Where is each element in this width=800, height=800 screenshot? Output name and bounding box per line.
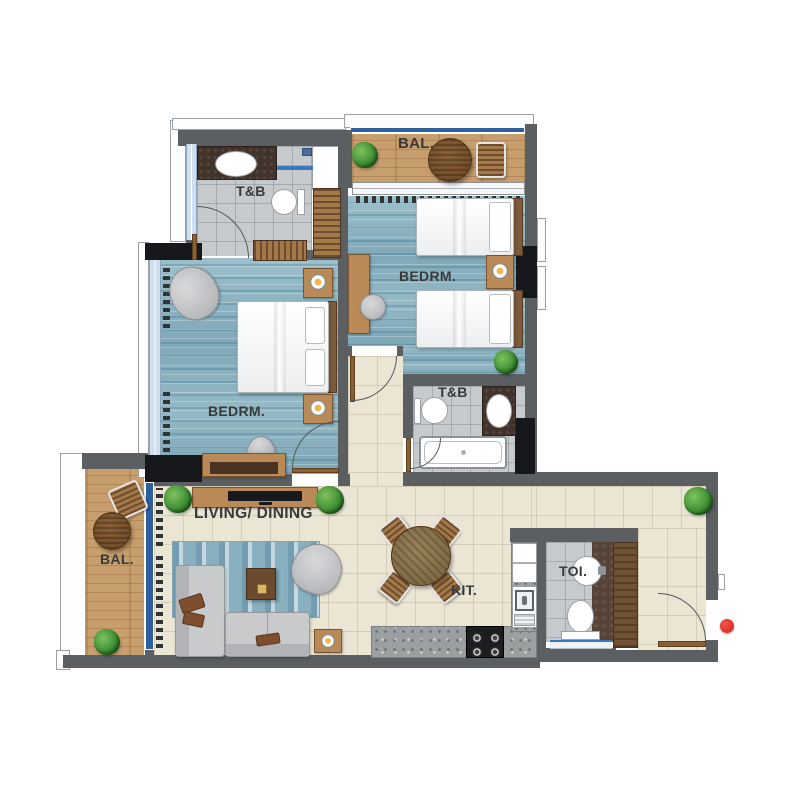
balcony-top-sliding-door bbox=[352, 182, 525, 195]
label-toilet: TOI. bbox=[559, 563, 587, 579]
plant-entry bbox=[684, 487, 713, 515]
wall-south-kitchen bbox=[370, 658, 540, 668]
desk-bedroom-right bbox=[348, 254, 370, 334]
toilet-tank-top-bath bbox=[297, 189, 305, 215]
bed-2-fold bbox=[453, 291, 466, 347]
wall-toilet-south bbox=[536, 648, 616, 662]
toilet-room-tank bbox=[561, 631, 600, 640]
wall-corridor-north bbox=[403, 472, 718, 486]
entry-exterior-nub bbox=[718, 574, 725, 590]
label-balcony-top: BAL. bbox=[398, 135, 434, 152]
wall-bedroom-right-south-west bbox=[338, 346, 352, 356]
dining-table bbox=[391, 526, 451, 586]
bathtub-drain bbox=[461, 450, 466, 455]
fridge bbox=[512, 543, 537, 583]
wall-entry-south bbox=[614, 650, 718, 662]
column-bedroom-left-south bbox=[145, 455, 202, 482]
toilet-room-bowl bbox=[567, 600, 594, 633]
wall-bathroom-middle-west bbox=[403, 386, 413, 438]
lamp-master-north bbox=[310, 274, 326, 290]
lamp-master-south bbox=[310, 400, 326, 416]
toilet-bowl-mid-bath bbox=[421, 397, 448, 424]
bed-1-fold bbox=[453, 199, 466, 255]
wall-bathroom-top bbox=[178, 130, 346, 146]
stove bbox=[466, 626, 504, 658]
wall-bedroom-left-south-east bbox=[338, 474, 350, 486]
balcony-top-railing bbox=[350, 127, 525, 133]
master-bed-pillow-2 bbox=[305, 349, 325, 386]
wall-bedroom-right-south-east bbox=[397, 346, 403, 356]
shower-glass-partition bbox=[277, 166, 313, 170]
entry-marker-dot bbox=[720, 619, 734, 633]
label-bedroom-right: BEDRM. bbox=[399, 268, 456, 284]
label-balcony-left: BAL. bbox=[100, 551, 134, 567]
label-living-dining: LIVING/ DINING bbox=[194, 505, 313, 523]
bathroom-window bbox=[186, 144, 197, 240]
bedroom-right-window-ledge-1 bbox=[537, 218, 546, 262]
closet-hall-vertical bbox=[313, 188, 341, 258]
bedroom-left-exterior-ledge bbox=[138, 242, 149, 478]
entry-door-leaf bbox=[658, 641, 706, 647]
dresser-master-drawers bbox=[210, 462, 278, 474]
corridor-floor bbox=[536, 486, 706, 528]
master-bed-pillow-1 bbox=[305, 307, 325, 344]
kitchen-drainer bbox=[514, 614, 535, 626]
curtain-bedroom-left-2 bbox=[163, 390, 170, 452]
toilet-room-faucet bbox=[598, 566, 606, 575]
table-balcony-top bbox=[428, 138, 472, 182]
label-bedroom-left: BEDRM. bbox=[208, 403, 265, 419]
chair-balcony-top bbox=[476, 142, 506, 178]
shower-stall bbox=[312, 146, 340, 190]
plant-living-east bbox=[316, 486, 344, 514]
wall-balcony-left-top bbox=[82, 453, 148, 469]
top-exterior-ledge bbox=[172, 118, 346, 130]
plant-bedroom-right bbox=[494, 350, 518, 374]
wall-bath-balcony-divider bbox=[338, 130, 352, 188]
sofa-main-back bbox=[226, 644, 309, 656]
lamp-bedroom-right bbox=[492, 263, 508, 279]
door-leaf-master bbox=[292, 468, 339, 473]
entry-closet bbox=[613, 542, 638, 648]
curtain-living-2 bbox=[156, 556, 163, 648]
plant-living-west bbox=[164, 485, 192, 513]
desk-chair-bedroom-right bbox=[360, 294, 386, 320]
master-bed-fold bbox=[274, 302, 286, 392]
wall-toilet-north bbox=[510, 528, 638, 542]
sink-top-bath bbox=[215, 151, 257, 177]
plant-balcony-top bbox=[352, 142, 378, 168]
bedroom-right-window-ledge-2 bbox=[537, 266, 546, 310]
shower-fixture bbox=[302, 148, 312, 156]
lamp-living bbox=[321, 634, 335, 648]
balcony-top-ledge bbox=[344, 114, 534, 128]
wall-bathroom-middle-north bbox=[403, 374, 537, 386]
table-balcony-left bbox=[93, 512, 131, 550]
toilet-bowl-top-bath bbox=[271, 189, 297, 215]
sink-mid-bath bbox=[486, 394, 512, 428]
floor-plan: BAL. T&B BEDRM. BEDRM. T&B LIVING/ DININ… bbox=[0, 0, 800, 800]
label-bathroom-middle: T&B bbox=[438, 384, 468, 400]
bed-2-pillow bbox=[489, 294, 511, 344]
toilet-tank-mid-bath bbox=[414, 398, 421, 424]
label-bathroom-top: T&B bbox=[236, 183, 266, 199]
bed-1-pillow bbox=[489, 202, 511, 252]
headboard-master-bed bbox=[328, 301, 337, 393]
label-kitchen: KIT. bbox=[451, 582, 477, 598]
wardrobe-corridor bbox=[515, 418, 535, 474]
balcony-left-railing bbox=[60, 453, 86, 657]
curtain-living-1 bbox=[156, 488, 163, 546]
kitchen-faucet bbox=[522, 596, 527, 605]
wall-kitchen-toilet-west bbox=[536, 530, 546, 648]
tv bbox=[228, 491, 302, 501]
bedroom-left-window bbox=[149, 260, 161, 456]
closet-bedroom-left bbox=[253, 240, 307, 261]
plant-balcony-left bbox=[94, 629, 120, 655]
toilet-threshold bbox=[550, 640, 612, 649]
coffee-table-tray bbox=[257, 584, 267, 594]
